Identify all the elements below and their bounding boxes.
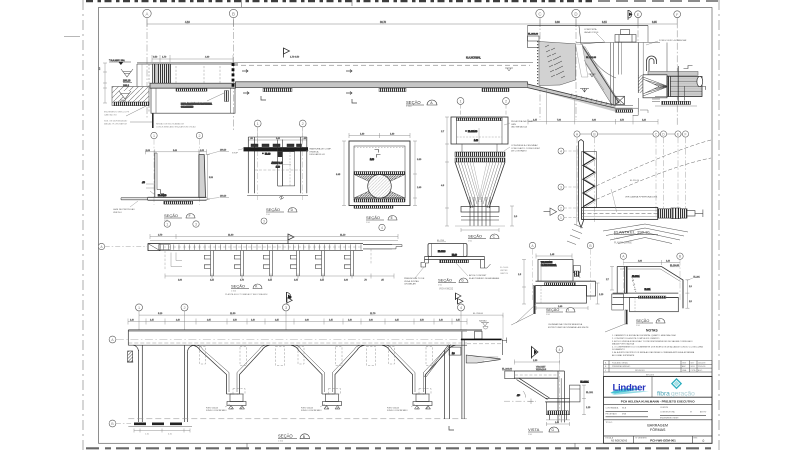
svg-text:1:100: 1:100 [278, 440, 284, 442]
svg-text:1.40: 1.40 [130, 320, 134, 322]
svg-text:1.15: 1.15 [320, 280, 325, 282]
svg-text:2.25: 2.25 [275, 320, 279, 322]
svg-text:1.10: 1.10 [145, 434, 150, 436]
svg-text:1.90: 1.90 [369, 320, 373, 322]
svg-text:1: 1 [166, 223, 168, 227]
svg-text:CONCR.SEMILAMO ENQUANTOM ORCAO: CONCR.SEMILAMO ENQUANTOM ORCAO [156, 125, 196, 128]
svg-text:3: 3 [285, 306, 287, 310]
svg-text:CVTA: CVTA [691, 369, 697, 372]
svg-text:2.0: 2.0 [514, 216, 518, 218]
svg-text:APOS CONCRET: APOS CONCRET [469, 274, 487, 277]
svg-text:1.60: 1.60 [390, 134, 395, 136]
svg-text:1.40: 1.40 [348, 320, 352, 322]
svg-text:1.3: 1.3 [689, 286, 693, 288]
svg-text:E: E [637, 13, 640, 17]
svg-text:4. O COMPRIMENTO DO I.SOBREMET: 4. O COMPRIMENTO DO I.SOBREMETR DOR EDIF… [612, 346, 703, 349]
svg-text:1.50: 1.50 [620, 120, 625, 122]
svg-text:CLIENTE: CLIENTE [660, 407, 669, 409]
svg-text:FUNDO CONCRETADO: FUNDO CONCRETADO [206, 409, 227, 412]
svg-text:1.40: 1.40 [251, 320, 255, 322]
svg-text:5.93: 5.93 [209, 177, 214, 179]
svg-text:EL.294.60: EL.294.60 [473, 313, 484, 315]
svg-text:B: B [232, 11, 235, 16]
svg-text:EL.290.10: EL.290.10 [630, 180, 640, 182]
svg-text:22/05/09: 22/05/09 [698, 366, 705, 368]
svg-text:PROJETADO: PROJETADO [606, 413, 618, 416]
svg-text:ABERT 2.40: ABERT 2.40 [272, 162, 284, 165]
svg-text:E: E [391, 216, 393, 220]
svg-text:SEÇÃO: SEÇÃO [278, 434, 293, 439]
svg-text:4.10: 4.10 [185, 21, 190, 24]
svg-text:P.LAJE JUSE FIXA: P.LAJE JUSE FIXA [541, 264, 557, 267]
svg-text:PLANTA ELEV.TOMADA DT ANCORAGE: PLANTA ELEV.TOMADA DT ANCORAGEM [225, 293, 268, 296]
svg-text:SUB. ON DA FUNDACAO: SUB. ON DA FUNDACAO [104, 120, 128, 123]
svg-text:2.30: 2.30 [305, 320, 309, 322]
svg-text:0.50: 0.50 [153, 57, 158, 59]
svg-text:VER DETALH: VER DETALH [541, 261, 553, 264]
svg-text:EL.291.30: EL.291.30 [586, 57, 597, 59]
svg-text:PLANTA EL. 290.10: PLANTA EL. 290.10 [614, 230, 650, 235]
svg-text:EL.29: EL.29 [265, 154, 271, 156]
svg-text:EL.291.30: EL.291.30 [468, 131, 478, 133]
svg-text:7.30: 7.30 [557, 120, 562, 122]
svg-text:10/04/09: 10/04/09 [698, 362, 705, 364]
svg-text:3.60: 3.60 [555, 21, 560, 24]
svg-text:1.45: 1.45 [150, 320, 154, 322]
svg-text:AD LUMAL SUPERIATE: AD LUMAL SUPERIATE [612, 354, 635, 357]
svg-text:6.95: 6.95 [652, 21, 657, 24]
svg-text:1:50: 1:50 [546, 314, 551, 316]
svg-text:2.40: 2.40 [176, 320, 180, 322]
svg-text:1.50: 1.50 [233, 320, 237, 322]
svg-text:REGIAO DE MULTICAMAS DE: REGIAO DE MULTICAMAS DE [156, 123, 185, 126]
svg-text:3: 3 [560, 185, 562, 189]
svg-text:N.A.NORMAL: N.A.NORMAL [466, 57, 482, 60]
svg-text:C: C [538, 11, 541, 16]
svg-text:FUNDO CONCRETADO: FUNDO CONCRETADO [301, 409, 322, 412]
svg-text:1.50: 1.50 [533, 360, 538, 362]
svg-text:1:50: 1:50 [636, 325, 641, 327]
svg-text:MTA: MTA [622, 413, 627, 416]
svg-text:CHUMBAR NA CONCRETAGEM DA: CHUMBAR NA CONCRETAGEM DA [548, 323, 583, 326]
svg-text:SEÇÃO: SEÇÃO [438, 278, 452, 283]
svg-text:PCH HELENA KUHLMANN - PROJETO: PCH HELENA KUHLMANN - PROJETO EXECUTIVO [621, 400, 695, 404]
svg-text:1.5: 1.5 [689, 301, 693, 303]
svg-text:EL.290.60: EL.290.60 [158, 195, 166, 197]
svg-text:COLCHETES: COLCHETES [181, 106, 194, 108]
svg-text:SEÇÃO: SEÇÃO [231, 284, 245, 289]
svg-text:REV.DES: REV.DES [646, 374, 655, 376]
svg-text:1.5: 1.5 [518, 274, 522, 276]
svg-text:11.70: 11.70 [370, 313, 376, 315]
svg-text:1.25: 1.25 [210, 280, 215, 282]
svg-text:CONSTRUTORA: CONSTRUTORA [660, 410, 675, 413]
svg-text:LIMITES: LIMITES [500, 270, 508, 272]
svg-text:2.0: 2.0 [99, 66, 101, 70]
svg-text:1.45: 1.45 [533, 120, 538, 122]
svg-text:PCH-W6-GEM-001: PCH-W6-GEM-001 [650, 438, 676, 442]
svg-text:6.45: 6.45 [336, 174, 341, 176]
svg-text:1: 1 [153, 134, 155, 138]
svg-text:EL.293.1: EL.293.1 [632, 276, 639, 278]
svg-text:1.15: 1.15 [456, 320, 460, 322]
svg-text:TITULO: TITULO [606, 422, 613, 424]
svg-text:VEDA JUNTAS: VEDA JUNTAS [404, 280, 419, 283]
svg-text:D: D [574, 11, 577, 16]
svg-text:1.70: 1.70 [162, 57, 167, 59]
svg-text:EL.291: EL.291 [693, 277, 700, 279]
svg-text:1.35: 1.35 [294, 280, 299, 282]
svg-text:1:50: 1:50 [528, 434, 533, 436]
svg-text:F: F [189, 214, 191, 218]
svg-text:1.08: 1.08 [146, 150, 151, 152]
svg-text:FUNDO CONCRETADO: FUNDO CONCRETADO [387, 409, 408, 412]
svg-text:AS INDICADAS: AS INDICADAS [611, 440, 628, 443]
svg-text:EL.29: EL.29 [452, 255, 457, 257]
svg-text:0: 0 [703, 439, 705, 443]
svg-text:4: 4 [560, 149, 562, 153]
svg-text:VER LAMINA P.PERFURACOES: VER LAMINA P.PERFURACOES [625, 196, 658, 199]
svg-text:1: 1 [560, 216, 562, 220]
svg-text:11.60: 11.60 [228, 235, 234, 237]
svg-text:2.7: 2.7 [441, 131, 445, 133]
svg-text:1.90: 1.90 [178, 280, 183, 282]
svg-text:30.70: 30.70 [380, 21, 387, 24]
svg-text:2. CONCRETO E AJUSTE COMPLEJOS: 2. CONCRETO E AJUSTE COMPLEJOS CIMENTO [612, 337, 660, 340]
svg-text:Nº DESENHO: Nº DESENHO [636, 436, 648, 439]
svg-text:SEÇÃO: SEÇÃO [266, 207, 280, 212]
svg-text:1:100: 1:100 [406, 106, 412, 108]
svg-text:3.30: 3.30 [417, 159, 422, 161]
svg-text:ESCALA: ESCALA [606, 437, 614, 440]
svg-text:11.10: 11.10 [340, 235, 346, 237]
svg-text:MALAS PORTO ALEGA: MALAS PORTO ALEGA [612, 343, 635, 346]
svg-text:SEÇÃO: SEÇÃO [164, 213, 178, 218]
svg-text:Lindner: Lindner [613, 383, 647, 394]
svg-text:1.0: 1.0 [452, 353, 455, 355]
svg-text:1.60: 1.60 [370, 159, 375, 161]
svg-text:3: 3 [195, 223, 197, 227]
svg-text:EL.291: EL.291 [586, 392, 594, 394]
svg-text:1.40: 1.40 [555, 422, 560, 424]
svg-text:EL.292.6: EL.292.6 [438, 251, 445, 253]
svg-text:NA.MAX: NA.MAX [479, 320, 487, 323]
svg-text:ENSECA: ENSECA [310, 150, 320, 153]
svg-text:EL.294.60: EL.294.60 [528, 34, 539, 36]
svg-text:1:50: 1:50 [266, 214, 271, 216]
svg-text:CABO ALT.SO: CABO ALT.SO [104, 113, 117, 116]
svg-text:ESTRUTURA2 SECUNDARIA LAJE EM.: ESTRUTURA2 SECUNDARIA LAJE EM.PE [548, 326, 589, 329]
svg-text:0: 0 [605, 370, 606, 372]
svg-text:1.70 0.50: 1.70 0.50 [290, 57, 300, 59]
svg-text:1.20: 1.20 [599, 294, 604, 296]
svg-text:2: 2 [183, 306, 185, 310]
svg-text:Nº: Nº [690, 410, 692, 413]
svg-text:5.10: 5.10 [158, 313, 163, 315]
svg-text:1.45: 1.45 [550, 254, 555, 256]
svg-text:I: I [568, 308, 569, 312]
svg-text:VER N.4: VER N.4 [113, 212, 122, 214]
svg-text:1.50: 1.50 [420, 320, 424, 322]
svg-text:2.40: 2.40 [417, 187, 422, 189]
svg-text:CONVERGE A V.ESCAVAC: CONVERGE A V.ESCAVAC [511, 144, 538, 147]
svg-text:REV.: REV. [694, 437, 699, 439]
svg-text:VAO METALICA: VAO METALICA [511, 126, 527, 129]
svg-text:2.25: 2.25 [395, 320, 399, 322]
svg-text:45°: 45° [517, 395, 520, 397]
svg-text:VISTA: VISTA [528, 427, 540, 432]
svg-text:DE CONTRATO: DE CONTRATO [511, 150, 527, 153]
svg-text:RANHURA DE COMP.: RANHURA DE COMP. [310, 148, 332, 151]
svg-text:1.20: 1.20 [586, 407, 591, 409]
svg-text:ABC: ABC [682, 365, 687, 368]
svg-text:ENGENHEIRO RESP.: ENGENHEIRO RESP. [660, 418, 679, 420]
svg-text:F: F [684, 132, 686, 136]
svg-text:NOTAS: NOTAS [646, 329, 658, 333]
svg-text:2: 2 [505, 100, 507, 104]
svg-text:STOP: STOP [232, 153, 238, 155]
svg-text:COMPORTA: COMPORTA [584, 28, 597, 31]
svg-text:4: 4 [381, 226, 383, 230]
svg-text:ART Nº: ART Nº [700, 410, 707, 413]
svg-text:11.50: 11.50 [230, 313, 236, 315]
svg-text:ENCHIMENTO VERcom PR: ENCHIMENTO VERcom PR [104, 112, 130, 114]
svg-text:CANTOS: CANTOS [500, 272, 509, 275]
svg-text:1.30: 1.30 [344, 280, 349, 282]
svg-text:MACAD. PLOROGAFOM: MACAD. PLOROGAFOM [104, 122, 127, 125]
svg-text:REVISOES: REVISOES [635, 370, 645, 372]
svg-text:PREENCHIM.TO DE: PREENCHIM.TO DE [404, 278, 425, 280]
svg-text:1.40: 1.40 [474, 140, 479, 142]
svg-text:* N.A.MAX. 294.: * N.A.MAX. 294. [109, 59, 125, 62]
svg-text:ELASTOMERO DE ARGAMAS: ELASTOMERO DE ARGAMAS [469, 277, 500, 280]
svg-text:5.48: 5.48 [173, 150, 178, 152]
svg-text:1.05: 1.05 [200, 150, 205, 152]
svg-text:.95: .95 [381, 280, 385, 282]
svg-text:4.30: 4.30 [592, 120, 597, 122]
svg-text:4.30: 4.30 [205, 57, 210, 59]
svg-text:PLANTA CHAVE: PLANTA CHAVE [614, 242, 632, 245]
svg-text:WLB: WLB [622, 408, 627, 410]
svg-text:SEÇÃO: SEÇÃO [468, 234, 482, 239]
svg-text:1.40: 1.40 [666, 261, 671, 263]
svg-text:AGO: AGO [698, 369, 703, 372]
svg-text:1:50: 1:50 [438, 284, 443, 286]
svg-text:CHUMB.AR: CHUMB.AR [404, 283, 416, 286]
svg-text:CONTRATADA: CONTRATADA [606, 407, 619, 410]
svg-text:SEÇÃO: SEÇÃO [366, 215, 380, 220]
svg-text:1: 1 [257, 122, 259, 126]
svg-text:4: 4 [559, 348, 561, 352]
svg-text:4.6: 4.6 [441, 185, 445, 187]
svg-text:4.30: 4.30 [638, 261, 643, 263]
svg-text:1:100: 1:100 [231, 290, 237, 292]
svg-text:2: 2 [199, 134, 201, 138]
svg-text:4: 4 [460, 306, 462, 310]
svg-text:VIGA KW232: VIGA KW232 [439, 288, 454, 291]
svg-text:DESCAR FLUO: DESCAR FLUO [310, 153, 326, 156]
svg-text:GRN: GRN [511, 124, 516, 126]
svg-text:1.45: 1.45 [329, 320, 333, 322]
svg-text:.60: .60 [142, 182, 146, 184]
svg-text:2: 2 [560, 206, 562, 210]
svg-text:3: 3 [263, 219, 265, 223]
svg-text:A: A [605, 361, 607, 364]
svg-text:6.15: 6.15 [602, 21, 607, 24]
svg-text:SEÇÃO: SEÇÃO [546, 307, 559, 312]
svg-text:1.40: 1.40 [276, 167, 281, 169]
svg-text:EL.292.1: EL.292.1 [581, 382, 590, 384]
svg-text:FÔRMAS: FÔRMAS [650, 427, 666, 432]
svg-text:2.7: 2.7 [606, 279, 610, 281]
svg-text:1.70: 1.70 [240, 280, 245, 282]
svg-text:geração: geração [671, 390, 695, 397]
svg-text:BARRAGEM: BARRAGEM [647, 424, 668, 428]
svg-text:4.10: 4.10 [168, 434, 173, 436]
svg-text:A: A [146, 11, 149, 16]
svg-text:.70: .70 [364, 280, 368, 282]
svg-text:1: 1 [459, 100, 461, 104]
svg-text:1:100: 1:100 [614, 238, 620, 240]
svg-text:COMO FALTO CONSOLIDAT: COMO FALTO CONSOLIDAT [511, 147, 540, 150]
svg-text:1:50: 1:50 [468, 240, 473, 242]
svg-text:GMA: GMA [682, 369, 687, 372]
svg-text:EL.291: EL.291 [645, 289, 651, 291]
svg-text:PRIMEIRA EMISSAO: PRIMEIRA EMISSAO [612, 365, 631, 368]
svg-text:SOLAMENTO: SOLAMENTO [612, 348, 625, 351]
svg-text:2.70: 2.70 [158, 235, 163, 237]
svg-text:1.40: 1.40 [439, 320, 443, 322]
svg-text:1. CABIMENTO E ELEVACAO EM MET: 1. CABIMENTO E ELEVACAO EM METAL QUANTO … [612, 334, 677, 337]
svg-text:1:50: 1:50 [366, 222, 371, 224]
svg-text:3. ATOLIO VENILA SOBLLEVAO T.C: 3. ATOLIO VENILA SOBLLEVAO T.CONFORM DIM… [612, 340, 693, 343]
svg-text:PECA FIXA DA COMP.: PECA FIXA DA COMP. [511, 120, 534, 123]
svg-text:VAGAO P.FUS: VAGAO P.FUS [584, 31, 599, 34]
svg-text:BETO ARGAMASSA PROTEGIDA: BETO ARGAMASSA PROTEGIDA [181, 103, 212, 106]
svg-text:5. AL AJUSTE RECIPROCOS SERA A: 5. AL AJUSTE RECIPROCOS SERA ALOJAS NIJA… [612, 351, 695, 354]
svg-text:1.20: 1.20 [642, 120, 647, 122]
svg-text:1: 1 [138, 306, 140, 310]
svg-text:PLACARD GERAL: PLACARD GERAL [612, 361, 628, 364]
svg-text:P.ORG V.EXC+SOBRECAR: P.ORG V.EXC+SOBRECAR [659, 39, 687, 42]
svg-text:LAJE DE PROTECAO: LAJE DE PROTECAO [113, 208, 135, 211]
svg-text:FL.CH-00: FL.CH-00 [500, 267, 508, 269]
svg-text:2: 2 [302, 122, 304, 126]
svg-text:SEÇÃO: SEÇÃO [636, 318, 649, 323]
svg-text:fibra: fibra [657, 390, 670, 397]
svg-text:1.60: 1.60 [360, 134, 365, 136]
svg-text:1.15: 1.15 [268, 280, 273, 282]
svg-text:SEÇÃO: SEÇÃO [406, 100, 421, 105]
svg-text:2.35: 2.35 [207, 320, 211, 322]
